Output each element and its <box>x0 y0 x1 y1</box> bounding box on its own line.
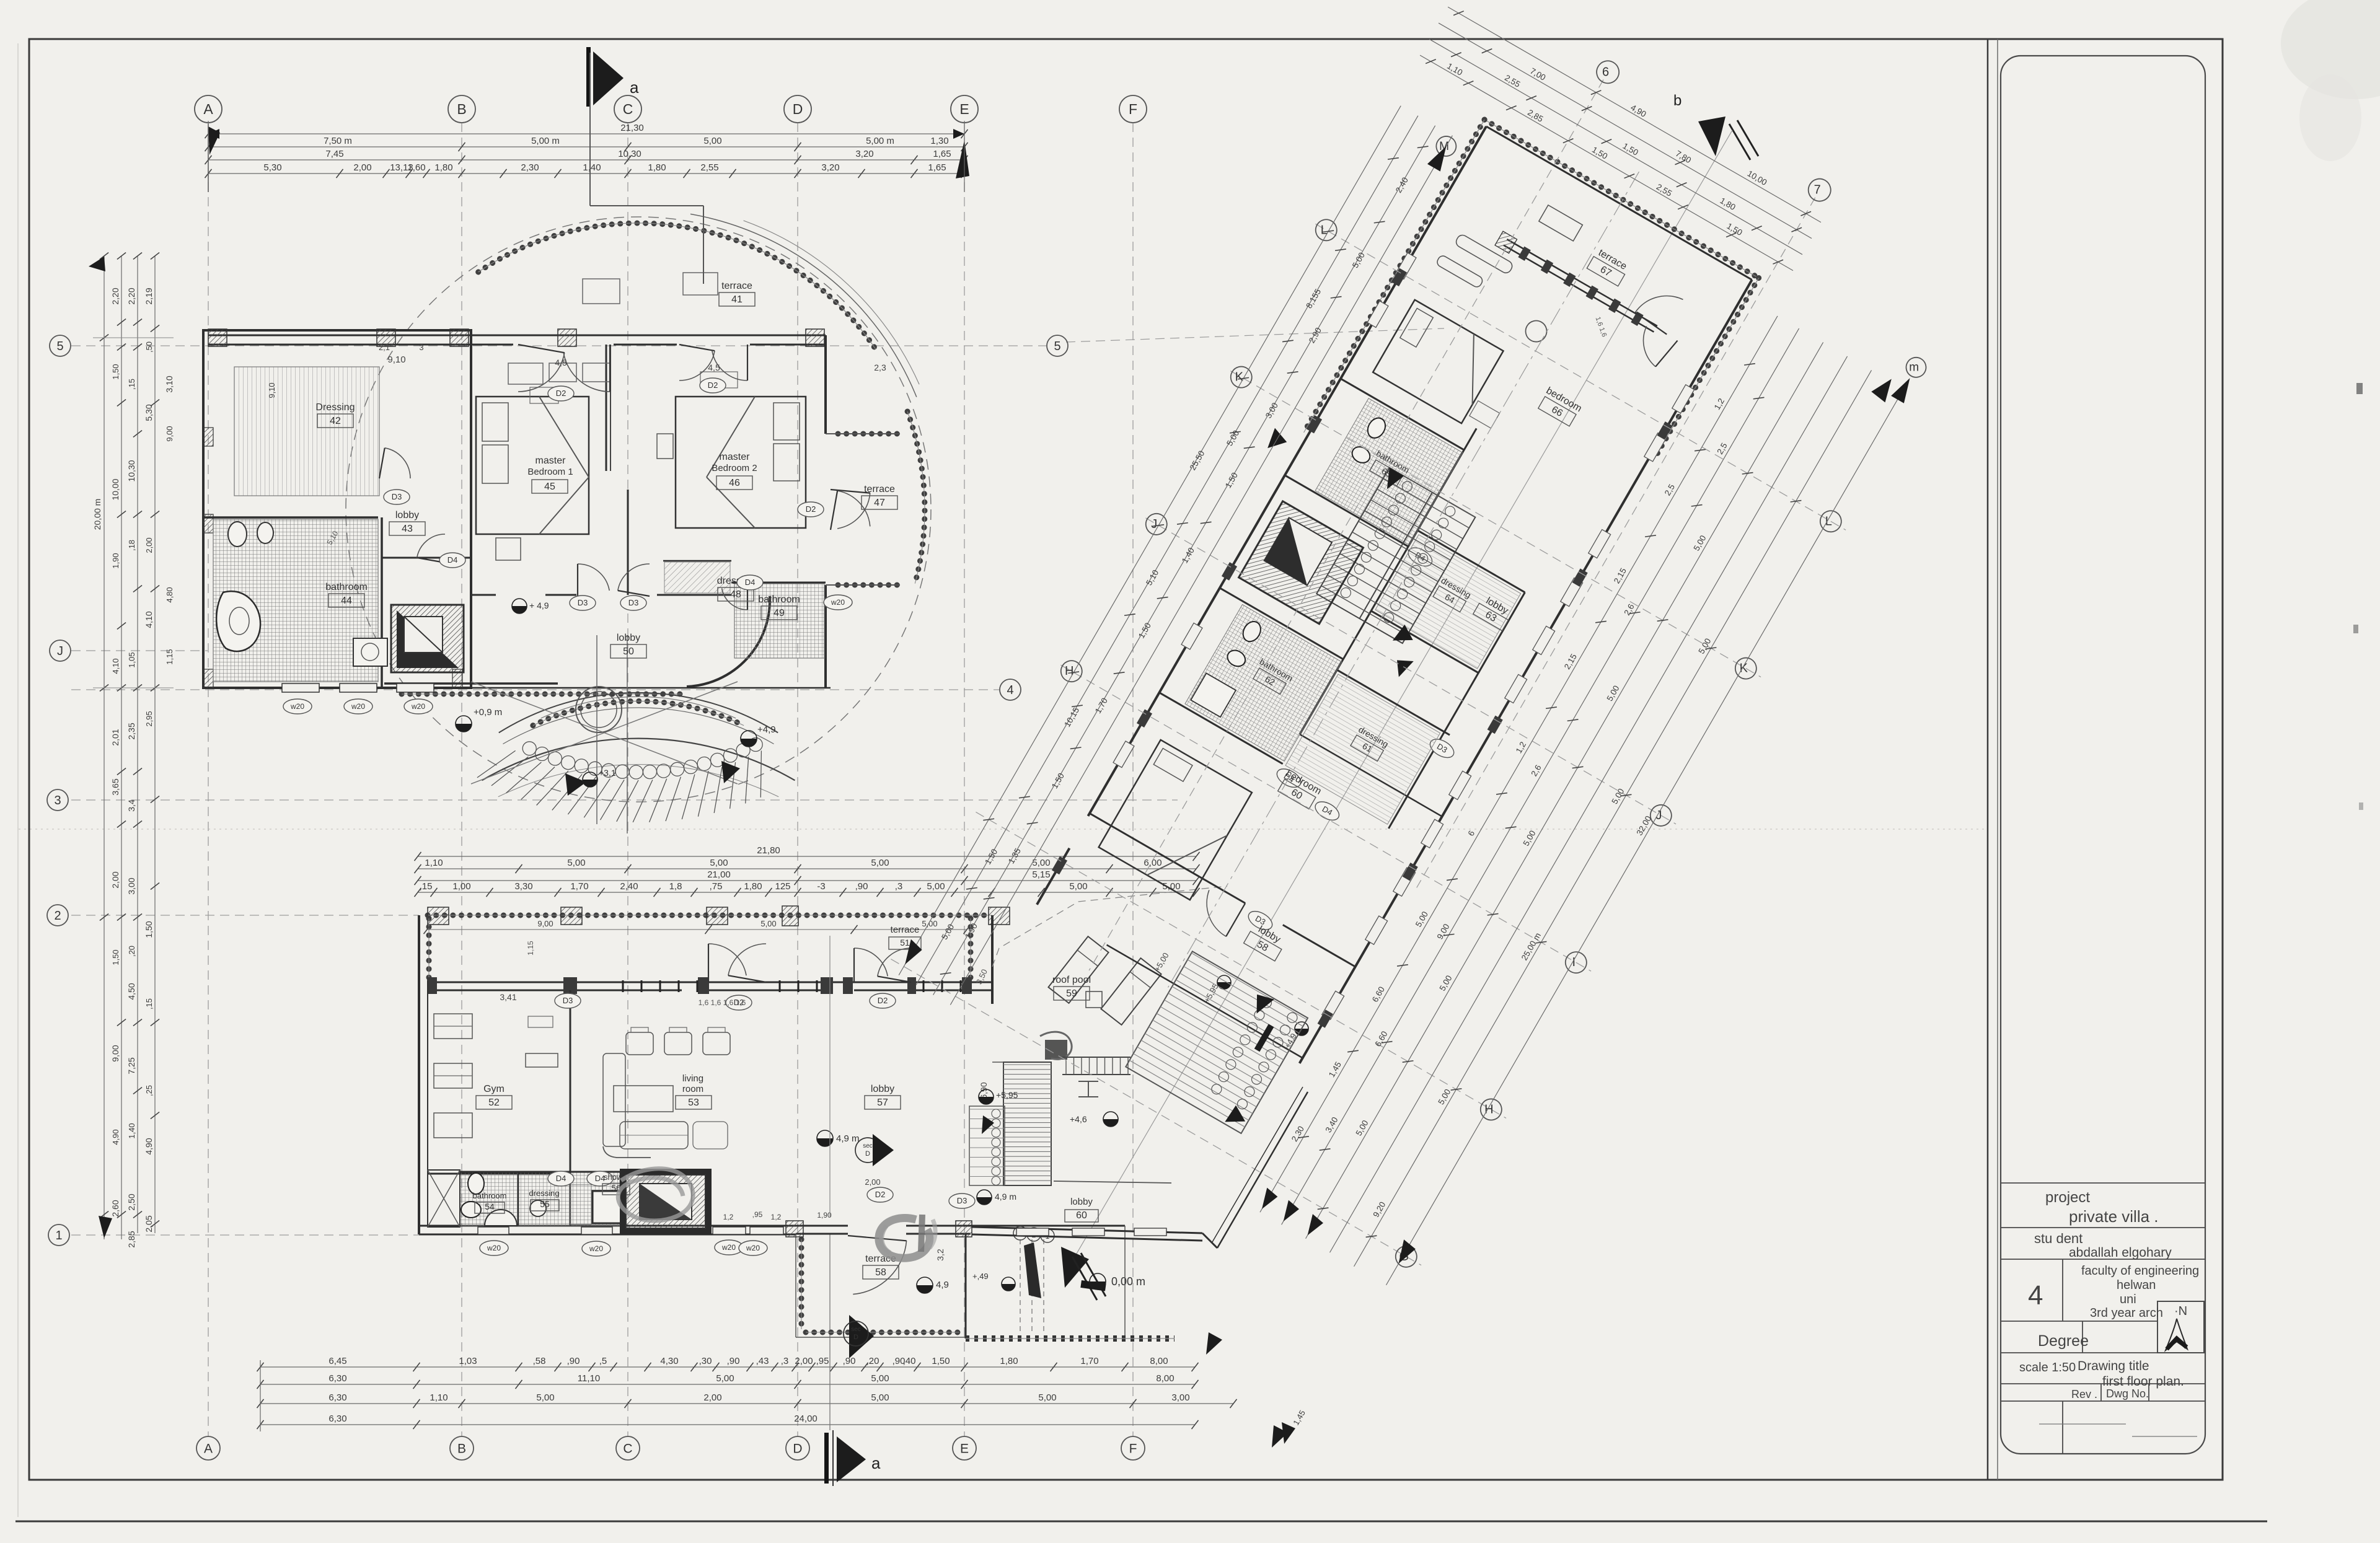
svg-text:5,00: 5,00 <box>710 858 728 868</box>
svg-text:1,2: 1,2 <box>723 1213 734 1221</box>
svg-text:8,00: 8,00 <box>1150 1356 1168 1366</box>
svg-text:F: F <box>1129 101 1137 117</box>
svg-text:D4: D4 <box>556 1174 566 1183</box>
svg-text:6: 6 <box>1602 65 1609 79</box>
svg-text:bathroom: bathroom <box>325 582 368 592</box>
svg-text:bathroom: bathroom <box>758 594 800 605</box>
svg-text:10,00: 10,00 <box>110 478 120 500</box>
svg-text:48: 48 <box>730 589 741 600</box>
svg-text:+3,1: +3,1 <box>599 768 616 778</box>
svg-text:room: room <box>682 1084 703 1094</box>
svg-text:,75: ,75 <box>710 881 723 892</box>
svg-text:J: J <box>57 644 63 658</box>
svg-text:3,20: 3,20 <box>821 162 839 173</box>
svg-text:57: 57 <box>877 1097 888 1108</box>
svg-text:2,00: 2,00 <box>144 537 154 553</box>
svg-text:,43: ,43 <box>756 1356 769 1366</box>
svg-text:24,00: 24,00 <box>794 1413 818 1424</box>
svg-text:1,10: 1,10 <box>425 858 443 868</box>
svg-text:5,00 m: 5,00 m <box>866 136 894 146</box>
svg-text:master: master <box>720 452 751 462</box>
svg-text:C: C <box>623 1441 632 1456</box>
svg-text:terrace: terrace <box>721 281 752 291</box>
svg-text:5,00: 5,00 <box>1032 858 1050 868</box>
svg-text:lobby: lobby <box>871 1084 894 1094</box>
svg-text:first floor plan.: first floor plan. <box>2102 1374 2184 1389</box>
svg-text:,3: ,3 <box>895 881 903 892</box>
svg-text:B: B <box>457 1441 466 1456</box>
svg-text:w20: w20 <box>487 1244 501 1252</box>
svg-text:master: master <box>535 455 566 466</box>
svg-text:D4: D4 <box>745 578 756 587</box>
svg-text:faculty of engineering: faculty of engineering <box>2081 1264 2199 1278</box>
svg-text:2,20: 2,20 <box>126 288 136 304</box>
svg-text:7,50 m: 7,50 m <box>324 136 352 146</box>
svg-text:2,85: 2,85 <box>126 1231 136 1247</box>
svg-text:A: A <box>203 101 213 117</box>
svg-text:5,00: 5,00 <box>871 858 889 868</box>
svg-text:2,35: 2,35 <box>126 723 136 739</box>
svg-text:5: 5 <box>1054 340 1060 353</box>
svg-text:3rd year arch: 3rd year arch <box>2090 1306 2163 1320</box>
svg-text:E: E <box>960 1441 969 1456</box>
svg-text:51: 51 <box>900 938 910 947</box>
svg-text:9,00: 9,00 <box>110 1045 120 1062</box>
svg-text:6,30: 6,30 <box>328 1413 346 1424</box>
svg-text:terrace: terrace <box>891 925 920 935</box>
svg-text:1: 1 <box>55 1229 62 1242</box>
svg-text:sec: sec <box>851 1326 861 1333</box>
svg-text:1,15: 1,15 <box>165 649 174 664</box>
svg-text:1,80: 1,80 <box>1000 1356 1018 1366</box>
svg-text:50: 50 <box>623 646 634 657</box>
svg-text:5,00: 5,00 <box>1038 1392 1056 1403</box>
svg-text:4,80: 4,80 <box>165 587 174 602</box>
svg-text:D3: D3 <box>392 492 402 501</box>
svg-text:living: living <box>682 1073 703 1084</box>
svg-text:7: 7 <box>1814 183 1821 197</box>
svg-text:w20: w20 <box>589 1244 603 1253</box>
svg-text:1,30: 1,30 <box>930 136 948 146</box>
svg-text:1,10: 1,10 <box>430 1392 447 1403</box>
svg-text:uni: uni <box>2120 1293 2136 1306</box>
svg-text:1,60: 1,60 <box>407 162 425 173</box>
svg-text:D2: D2 <box>875 1190 886 1199</box>
svg-text:lobby: lobby <box>395 510 419 521</box>
svg-text:,30: ,30 <box>699 1356 712 1366</box>
svg-text:4,9 m: 4,9 m <box>995 1192 1016 1202</box>
svg-text:5,30: 5,30 <box>144 404 154 421</box>
svg-text:5,00: 5,00 <box>1162 881 1180 892</box>
svg-text:49: 49 <box>773 608 785 618</box>
svg-text:1,40: 1,40 <box>127 1123 136 1138</box>
svg-text:10,30: 10,30 <box>126 460 136 481</box>
svg-text:20,00 m: 20,00 m <box>92 499 102 530</box>
svg-text:5,00: 5,00 <box>1069 881 1087 892</box>
svg-text:42: 42 <box>330 416 341 426</box>
svg-text:1,50: 1,50 <box>144 921 154 938</box>
svg-text:2: 2 <box>54 909 61 923</box>
svg-text:,90: ,90 <box>567 1356 580 1366</box>
svg-text:41: 41 <box>731 294 743 305</box>
svg-text:44: 44 <box>341 596 352 606</box>
svg-text:D: D <box>793 101 803 117</box>
svg-text:3,4: 3,4 <box>126 799 136 812</box>
svg-text:2,00: 2,00 <box>110 871 120 888</box>
svg-text:w20: w20 <box>721 1243 736 1252</box>
svg-text:5,00: 5,00 <box>927 881 945 892</box>
svg-text:9,00: 9,00 <box>165 426 174 441</box>
svg-text:K: K <box>1235 371 1244 384</box>
svg-text:2,00: 2,00 <box>865 1177 880 1187</box>
svg-text:w20: w20 <box>411 702 425 711</box>
svg-text:w20: w20 <box>351 702 365 711</box>
svg-text:1,2: 1,2 <box>771 1213 782 1221</box>
svg-text:2,19: 2,19 <box>144 288 154 304</box>
svg-text:43: 43 <box>402 524 413 534</box>
svg-text:54: 54 <box>485 1202 495 1211</box>
svg-text:F: F <box>1129 1441 1137 1456</box>
svg-text:,15: ,15 <box>127 379 136 390</box>
svg-text:2,60: 2,60 <box>110 1200 120 1216</box>
svg-text:1,65: 1,65 <box>928 162 946 173</box>
svg-text:D2: D2 <box>878 996 888 1005</box>
svg-text:11,10: 11,10 <box>578 1373 600 1384</box>
svg-text:dressing: dressing <box>529 1189 559 1198</box>
svg-text:Drawing title: Drawing title <box>2078 1359 2149 1373</box>
svg-text:A: A <box>204 1441 213 1456</box>
svg-text:7,25: 7,25 <box>126 1057 136 1074</box>
svg-text:D4: D4 <box>447 555 458 565</box>
svg-text:6,30: 6,30 <box>328 1392 346 1403</box>
svg-text:sec: sec <box>863 1143 873 1150</box>
svg-text:60: 60 <box>1076 1210 1087 1221</box>
svg-text:w20: w20 <box>831 598 845 607</box>
svg-text:7,45: 7,45 <box>325 149 343 159</box>
svg-text:5,00 m: 5,00 m <box>531 136 560 146</box>
svg-text:52: 52 <box>488 1097 500 1108</box>
svg-text:5,00: 5,00 <box>703 136 721 146</box>
svg-text:lobby: lobby <box>617 633 640 643</box>
svg-text:2,20: 2,20 <box>110 288 120 304</box>
svg-text:private villa .: private villa . <box>2069 1207 2159 1226</box>
svg-text:47: 47 <box>874 498 885 508</box>
svg-text:,20: ,20 <box>127 946 136 957</box>
svg-text:4: 4 <box>1007 684 1013 697</box>
svg-text:5,00: 5,00 <box>536 1392 554 1403</box>
svg-text:,5: ,5 <box>599 1356 607 1366</box>
svg-text:+4,6: +4,6 <box>1070 1114 1087 1124</box>
svg-text:9,00: 9,00 <box>537 919 553 928</box>
svg-text:1,8: 1,8 <box>669 881 682 892</box>
svg-text:1,50: 1,50 <box>932 1356 950 1366</box>
svg-text:a: a <box>871 1454 881 1472</box>
svg-text:1,05: 1,05 <box>127 652 136 667</box>
svg-text:D: D <box>865 1150 870 1158</box>
svg-text:+4,9: +4,9 <box>757 724 776 735</box>
svg-text:5,30: 5,30 <box>263 162 281 173</box>
svg-text:1,6 1,6 1,6 1,6: 1,6 1,6 1,6 1,6 <box>699 998 746 1007</box>
svg-text:3,2: 3,2 <box>935 1249 945 1261</box>
svg-text:21,80: 21,80 <box>757 845 780 856</box>
svg-text:5,00: 5,00 <box>922 919 937 928</box>
svg-text:2,50: 2,50 <box>126 1194 136 1210</box>
svg-text:H: H <box>1065 664 1073 678</box>
svg-text:53: 53 <box>688 1097 699 1108</box>
svg-text:,50: ,50 <box>144 341 154 353</box>
svg-text:2,40: 2,40 <box>620 881 638 892</box>
svg-text:terrace: terrace <box>864 484 895 495</box>
svg-text:2,00: 2,00 <box>353 162 371 173</box>
svg-text:stu dent: stu dent <box>2034 1231 2082 1246</box>
svg-text:m: m <box>1909 361 1919 374</box>
svg-text:125: 125 <box>775 881 790 892</box>
svg-text:1,50: 1,50 <box>111 949 120 965</box>
svg-text:bathroom: bathroom <box>473 1191 507 1200</box>
svg-text:D3: D3 <box>628 598 639 607</box>
svg-text:D2: D2 <box>556 389 566 398</box>
svg-text:D: D <box>853 1334 858 1341</box>
svg-text:55: 55 <box>540 1199 550 1209</box>
svg-text:2,95: 2,95 <box>144 711 154 726</box>
svg-text:scale 1:50: scale 1:50 <box>2019 1361 2076 1374</box>
svg-text:4,5: 4,5 <box>708 363 720 372</box>
svg-text:3: 3 <box>54 794 61 807</box>
svg-text:a: a <box>630 78 639 97</box>
svg-text:2,3: 2,3 <box>874 363 886 372</box>
svg-text:1,70: 1,70 <box>1080 1356 1098 1366</box>
svg-text:4,30: 4,30 <box>660 1356 678 1366</box>
svg-text:1,40: 1,40 <box>583 162 601 173</box>
svg-text:6,45: 6,45 <box>328 1356 346 1366</box>
svg-text:,95: ,95 <box>816 1356 829 1366</box>
svg-text:D3: D3 <box>957 1196 967 1205</box>
svg-text:10,30: 10,30 <box>618 149 641 159</box>
svg-text:3,00: 3,00 <box>1171 1392 1189 1403</box>
svg-text:,40: ,40 <box>903 1356 916 1366</box>
svg-text:E: E <box>959 101 969 117</box>
svg-text:46: 46 <box>729 478 740 488</box>
svg-text:Degree: Degree <box>2038 1332 2089 1350</box>
svg-text:b: b <box>1673 92 1681 109</box>
svg-text:w20: w20 <box>290 702 304 711</box>
svg-text:3,30: 3,30 <box>514 881 532 892</box>
svg-text:2,05: 2,05 <box>144 1215 154 1232</box>
svg-text:1,00: 1,00 <box>452 881 470 892</box>
svg-text:+ 4,9: + 4,9 <box>529 600 549 610</box>
svg-text:0,00 m: 0,00 m <box>1111 1275 1145 1288</box>
svg-text:,58: ,58 <box>533 1356 546 1366</box>
svg-text:5,00: 5,00 <box>871 1392 889 1403</box>
svg-text:,15: ,15 <box>420 881 433 892</box>
svg-text:2,30: 2,30 <box>521 162 539 173</box>
svg-text:,95: ,95 <box>752 1210 763 1219</box>
svg-text:4,5: 4,5 <box>555 358 567 367</box>
svg-text:1,80: 1,80 <box>434 162 452 173</box>
svg-text:roof pool: roof pool <box>1052 975 1091 985</box>
svg-text:6,90: 6,90 <box>979 1082 989 1099</box>
svg-text:C: C <box>623 101 633 117</box>
svg-text:9,10: 9,10 <box>387 354 405 365</box>
svg-text:K: K <box>1740 662 1748 675</box>
svg-text:,25: ,25 <box>144 1085 154 1096</box>
svg-text:·N: ·N <box>2174 1304 2187 1318</box>
svg-text:2,00: 2,00 <box>703 1392 721 1403</box>
svg-text:,90: ,90 <box>727 1356 740 1366</box>
svg-text:4,9: 4,9 <box>936 1280 949 1290</box>
svg-text:abdallah elgohary: abdallah elgohary <box>2069 1246 2172 1260</box>
svg-text:3: 3 <box>419 343 423 352</box>
svg-text:Bedroom 1: Bedroom 1 <box>527 467 573 477</box>
svg-text:,20: ,20 <box>866 1356 879 1366</box>
svg-text:5,00: 5,00 <box>567 858 585 868</box>
svg-text:4: 4 <box>2028 1280 2043 1311</box>
svg-text:Bedroom 2: Bedroom 2 <box>712 463 757 473</box>
svg-text:3,65: 3,65 <box>110 778 120 795</box>
svg-text:1,15: 1,15 <box>526 941 535 956</box>
svg-text:3,20: 3,20 <box>855 149 873 159</box>
svg-text:1,03: 1,03 <box>459 1356 477 1366</box>
svg-text:3,10: 3,10 <box>164 376 174 392</box>
svg-text:lobby: lobby <box>1070 1197 1093 1207</box>
svg-text:6,30: 6,30 <box>328 1373 346 1384</box>
svg-text:5: 5 <box>56 340 63 353</box>
svg-text:21,30: 21,30 <box>620 123 644 133</box>
svg-text:1,50: 1,50 <box>111 364 120 379</box>
svg-text:2,00: 2,00 <box>795 1356 813 1366</box>
svg-text:4,10: 4,10 <box>144 611 154 628</box>
svg-text:D3: D3 <box>563 996 573 1005</box>
svg-text:1,80: 1,80 <box>648 162 666 173</box>
svg-text:4,9 m: 4,9 m <box>836 1133 860 1144</box>
svg-text:w20: w20 <box>746 1244 760 1252</box>
svg-text:Dwg No.: Dwg No. <box>2106 1387 2149 1400</box>
svg-text:B: B <box>457 101 466 117</box>
svg-text:Dressing: Dressing <box>315 402 355 413</box>
svg-text:4,90: 4,90 <box>111 1129 120 1145</box>
svg-text:,18: ,18 <box>127 540 136 551</box>
svg-text:58: 58 <box>875 1267 886 1278</box>
svg-text:4,10: 4,10 <box>111 658 120 674</box>
svg-text:5,00: 5,00 <box>716 1373 734 1384</box>
svg-text:5,00: 5,00 <box>871 1373 889 1384</box>
svg-text:1,90: 1,90 <box>111 553 120 568</box>
svg-text:8,00: 8,00 <box>1156 1373 1174 1384</box>
svg-text:H: H <box>1484 1103 1493 1117</box>
svg-text:D2: D2 <box>708 380 718 390</box>
svg-text:21,00: 21,00 <box>707 869 731 880</box>
svg-text:3,00: 3,00 <box>126 877 136 894</box>
svg-text:Rev .: Rev . <box>2071 1388 2097 1400</box>
svg-text:1,80: 1,80 <box>744 881 762 892</box>
svg-text:project: project <box>2045 1189 2090 1206</box>
svg-text:J: J <box>1655 809 1662 822</box>
svg-text:45: 45 <box>544 481 555 492</box>
svg-text:L: L <box>1825 514 1832 528</box>
svg-text:D: D <box>793 1441 802 1456</box>
svg-text:1,65: 1,65 <box>933 149 951 159</box>
svg-text:2,55: 2,55 <box>700 162 718 173</box>
svg-text:,15: ,15 <box>144 998 154 1009</box>
svg-text:4,50: 4,50 <box>126 983 136 1000</box>
svg-text:2,1: 2,1 <box>379 343 390 352</box>
svg-text:1,70: 1,70 <box>570 881 588 892</box>
svg-text:5,00: 5,00 <box>760 919 776 928</box>
svg-text:59: 59 <box>1066 988 1077 999</box>
svg-text:helwan: helwan <box>2117 1278 2156 1292</box>
svg-text:Gym: Gym <box>483 1084 505 1094</box>
svg-text:,90: ,90 <box>855 881 868 892</box>
svg-text:+0,9 m: +0,9 m <box>474 707 502 718</box>
svg-text:9,10: 9,10 <box>267 382 276 398</box>
svg-text:D3: D3 <box>578 598 588 607</box>
svg-text:,3: ,3 <box>781 1356 789 1366</box>
svg-text:+5,95: +5,95 <box>996 1090 1018 1100</box>
svg-text:3,41: 3,41 <box>500 992 516 1002</box>
svg-text:5,15: 5,15 <box>1032 869 1050 880</box>
svg-text:D2: D2 <box>806 504 816 514</box>
svg-text:+,49: +,49 <box>972 1272 989 1281</box>
svg-text:2,01: 2,01 <box>110 729 120 745</box>
svg-text:4,90: 4,90 <box>144 1138 154 1154</box>
svg-text:-3: -3 <box>817 881 825 892</box>
